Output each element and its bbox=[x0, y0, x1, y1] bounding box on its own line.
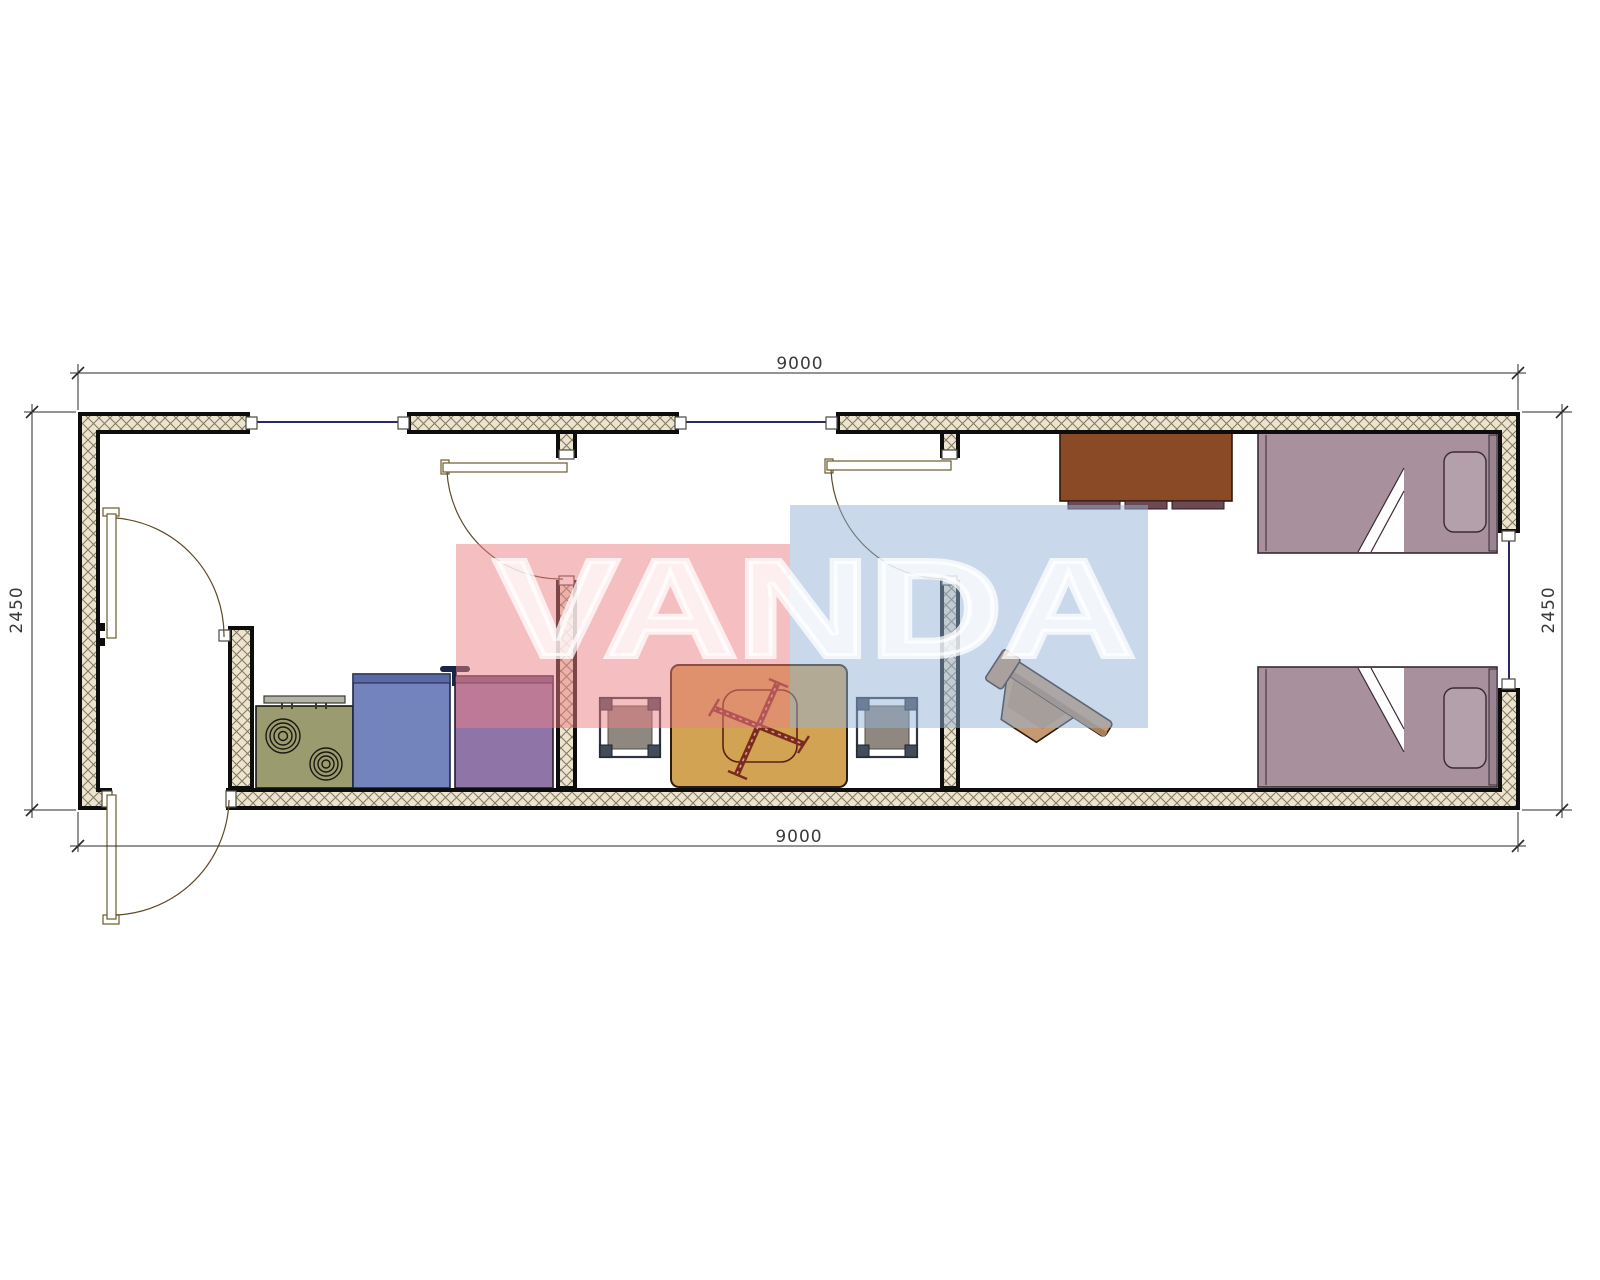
dimension-label-top: 9000 bbox=[776, 354, 823, 374]
pillow bbox=[1444, 688, 1486, 768]
stove-back-rail bbox=[264, 696, 345, 703]
watermark-text: VANDA bbox=[495, 532, 1135, 686]
watermark: VANDA bbox=[456, 505, 1148, 728]
floor-plan-canvas: VANDA 9000 9000 2450 2450 bbox=[0, 0, 1600, 1280]
bed-top bbox=[1258, 433, 1497, 553]
dimension-label-bottom: 9000 bbox=[775, 827, 822, 847]
wardrobe bbox=[1060, 431, 1232, 509]
door-jamb-notch bbox=[97, 623, 105, 631]
dimension-label-right: 2450 bbox=[1539, 586, 1559, 633]
pillow bbox=[1444, 452, 1486, 532]
bed-bottom bbox=[1258, 667, 1497, 787]
stove bbox=[256, 696, 353, 788]
floor-plan-drawing: VANDA 9000 9000 2450 2450 bbox=[0, 0, 1600, 1280]
door-jamb-notch bbox=[97, 638, 105, 646]
dimension-label-left: 2450 bbox=[7, 586, 27, 633]
